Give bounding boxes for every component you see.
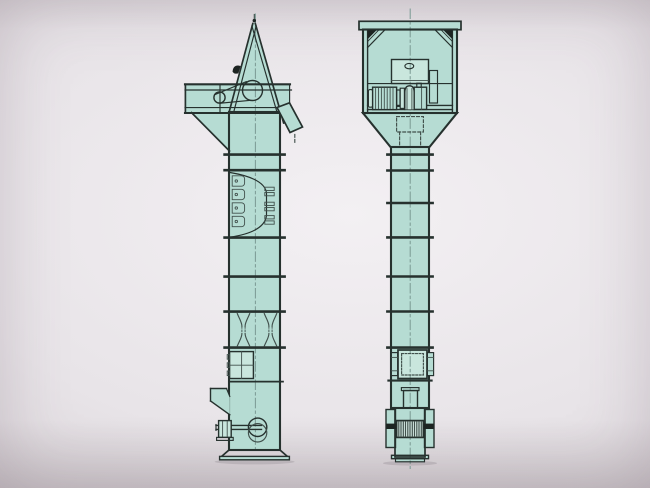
door-channel-left [391,353,397,376]
side-base [215,450,295,464]
front-door-fill [398,350,427,379]
door-channel-right [427,353,433,376]
apex-pin [253,19,256,22]
base-plate [220,456,290,459]
bucket-elevator-drawing [0,0,650,488]
front-view [359,9,461,469]
inlet-chute [211,389,230,415]
motor-fins [376,89,393,109]
shaft-stub-left [386,424,396,429]
casing-fill [229,112,280,450]
side-inspection-door [227,352,253,379]
shaft-stub-right [424,424,434,429]
coupling-flange [400,88,404,108]
plummer-block [219,421,232,438]
scanned-drawing-photo [0,0,650,488]
buckets-right-column [265,187,274,224]
gearbox [414,87,426,109]
bearing-housing [405,86,414,110]
side-view [185,14,303,464]
belt-guard-fill [430,71,438,104]
